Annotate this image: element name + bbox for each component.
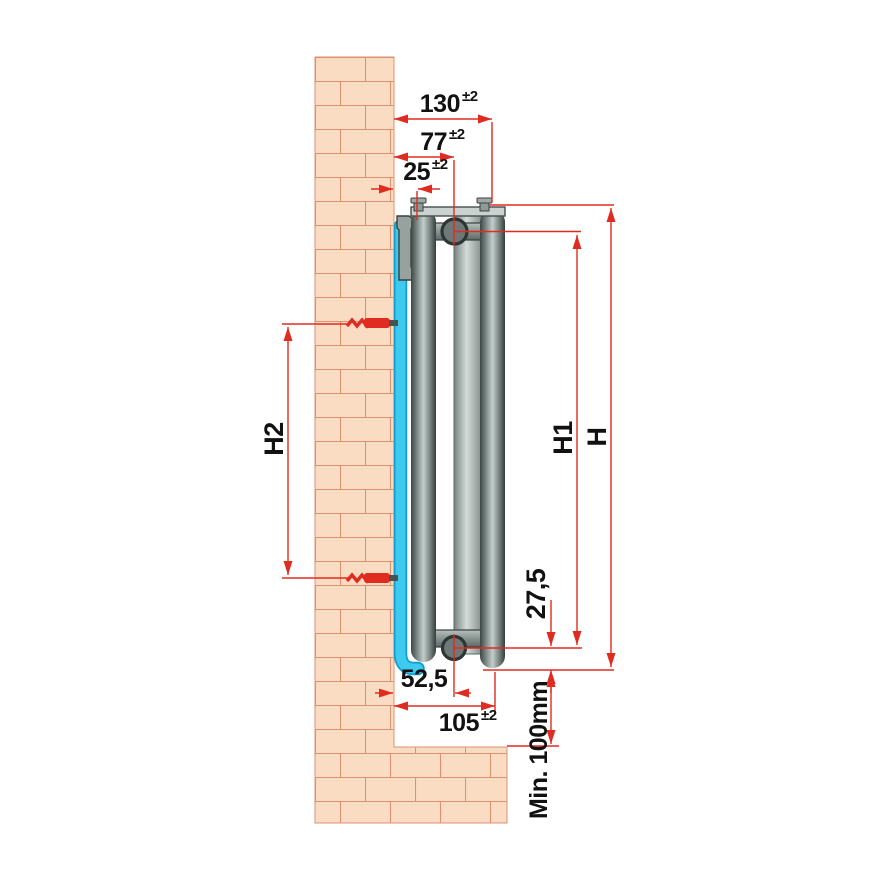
back-panel [411, 210, 436, 662]
label-77-tolerance: ±2 [449, 126, 465, 143]
top-grille [411, 207, 505, 216]
label-H: H [582, 428, 612, 447]
label-105-tolerance: ±2 [481, 707, 497, 724]
label-105: 105 [439, 709, 480, 737]
label-H2: H2 [259, 422, 289, 456]
diagram-canvas: 130 ±2 77 ±2 25 ±2 52,5 105 ±2 H2 H1 H 2… [0, 0, 880, 880]
label-25-tolerance: ±2 [432, 156, 448, 173]
label-77: 77 [420, 128, 447, 156]
radiator-installation-diagram: 130 ±2 77 ±2 25 ±2 52,5 105 ±2 H2 H1 H 2… [0, 0, 880, 880]
front-panel [480, 210, 505, 668]
label-27-5: 27,5 [521, 568, 551, 619]
label-52-5: 52,5 [401, 665, 448, 693]
label-25: 25 [403, 158, 430, 186]
label-130-tolerance: ±2 [462, 88, 478, 105]
label-H1: H1 [548, 421, 578, 455]
label-min-100mm: Min. 100mm [525, 681, 553, 819]
label-130: 130 [420, 90, 460, 118]
radiator [411, 198, 505, 668]
convector-fins [454, 216, 482, 654]
